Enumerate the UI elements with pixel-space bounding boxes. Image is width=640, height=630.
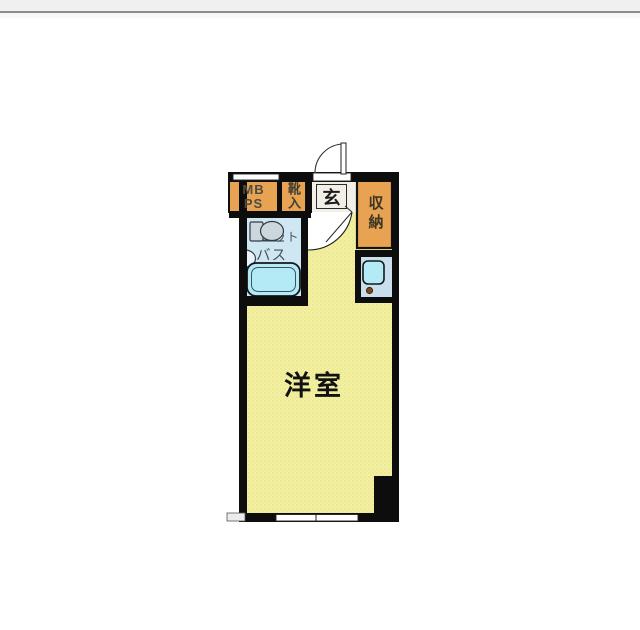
main-room-label: 洋室 — [280, 366, 348, 400]
kitchen-sink-icon — [363, 261, 384, 284]
wall-corner-notch — [374, 476, 399, 521]
bottom-window — [276, 515, 358, 522]
unit-bath-label-line2: バス — [256, 248, 287, 264]
page: ユニット バス — [0, 0, 640, 630]
wall-under-closets — [229, 211, 311, 218]
shoe-cabinet-label: 靴入 — [281, 180, 306, 212]
wall-shoe-hall — [306, 172, 312, 213]
wall-step-left — [227, 513, 245, 521]
wall-bath-bottom — [239, 296, 308, 306]
entrance-door-leaf — [341, 143, 346, 174]
mb-ps-label: MB PS — [229, 182, 278, 212]
wall-bath-right — [301, 213, 308, 306]
wall-right — [392, 172, 399, 522]
wall-kitchen-top — [355, 250, 399, 257]
meter-box-window — [233, 174, 279, 180]
storage-label: 収納 — [359, 182, 391, 246]
entrance-door — [315, 143, 346, 174]
wall-kitchen-bottom — [355, 297, 399, 303]
toilet-bowl-icon — [261, 222, 284, 241]
entrance-door-arc — [315, 144, 344, 173]
entrance-label: 玄 — [316, 184, 347, 209]
wall-kitchen-left — [355, 250, 361, 303]
faucet-knob-icon — [366, 287, 372, 293]
floorplan-drawing: ユニット バス — [0, 0, 640, 630]
wall-left — [239, 172, 247, 522]
